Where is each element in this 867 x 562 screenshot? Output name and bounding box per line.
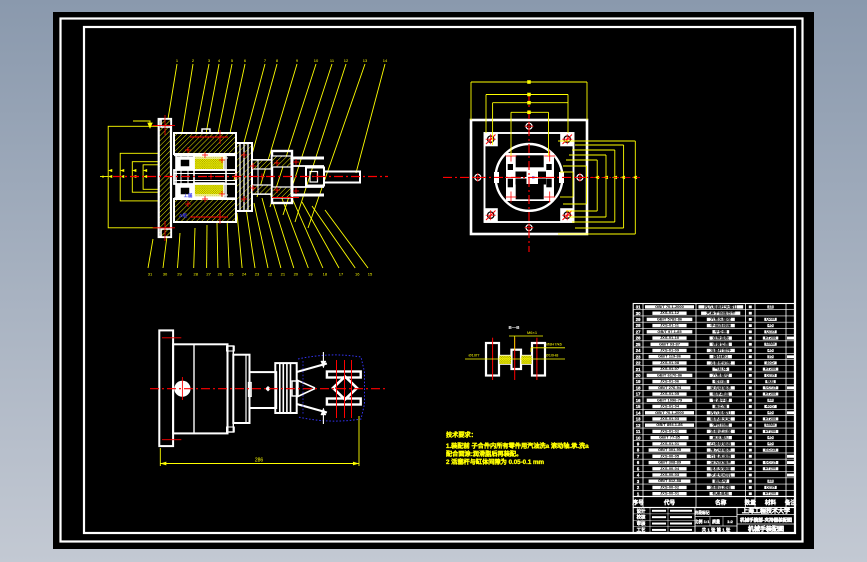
svg-text:23: 23 <box>255 272 260 277</box>
svg-text:17: 17 <box>339 272 344 277</box>
svg-text:20: 20 <box>636 373 641 378</box>
svg-text:65Mn: 65Mn <box>766 423 776 427</box>
svg-text:活塞杆合件: 活塞杆合件 <box>710 347 732 354</box>
svg-text:阶段标记: 阶段标记 <box>694 510 709 515</box>
svg-text:普通平键: 普通平键 <box>712 396 730 403</box>
svg-text:12: 12 <box>636 423 641 428</box>
svg-text:45: 45 <box>768 324 772 328</box>
svg-text:代号: 代号 <box>663 499 676 507</box>
svg-text:工艺: 工艺 <box>637 526 646 533</box>
svg-text:JXS-00-04: JXS-00-04 <box>660 466 680 471</box>
svg-text:GB/T 308-89: GB/T 308-89 <box>658 460 682 465</box>
svg-text:25: 25 <box>229 272 234 277</box>
svg-text:轴承端盖: 轴承端盖 <box>712 390 730 397</box>
svg-text:GB/T 301-95: GB/T 301-95 <box>658 447 682 452</box>
svg-text:质量: 质量 <box>712 518 720 524</box>
svg-text:机座底板: 机座底板 <box>712 490 730 497</box>
svg-text:Q235: Q235 <box>766 317 775 321</box>
svg-text:数量: 数量 <box>745 499 757 507</box>
svg-text:JXS-01-11: JXS-01-11 <box>660 323 680 328</box>
svg-text:深沟球轴承: 深沟球轴承 <box>710 384 732 391</box>
svg-text:GCr15: GCr15 <box>765 448 776 452</box>
svg-text:2 活塞杆与缸体间隙为 0.05-0.1 mm: 2 活塞杆与缸体间隙为 0.05-0.1 mm <box>446 458 544 466</box>
svg-text:输出轴: 输出轴 <box>714 403 727 410</box>
svg-text:10: 10 <box>314 58 319 63</box>
svg-text:23: 23 <box>636 354 641 359</box>
svg-text:GB/T 70.1-2000: GB/T 70.1-2000 <box>655 304 684 309</box>
svg-text:45: 45 <box>768 411 772 415</box>
svg-text:14: 14 <box>636 410 641 415</box>
svg-text:15: 15 <box>368 272 373 277</box>
svg-text:M6×1: M6×1 <box>527 330 538 335</box>
svg-text:45: 45 <box>768 305 772 309</box>
svg-text:21: 21 <box>281 272 286 277</box>
svg-text:HT200: HT200 <box>765 367 776 371</box>
svg-text:JXS-01-05: JXS-01-05 <box>660 391 680 396</box>
svg-text:JXS-01-06: JXS-01-06 <box>660 379 680 384</box>
svg-text:手指连接座: 手指连接座 <box>710 322 732 329</box>
svg-text:GB/T 119-86: GB/T 119-86 <box>658 354 682 359</box>
svg-text:27: 27 <box>636 329 641 334</box>
svg-text:JXS-01-03: JXS-01-03 <box>660 416 680 421</box>
svg-text:24: 24 <box>242 272 247 277</box>
svg-text:29: 29 <box>177 272 182 277</box>
svg-text:六角螺母: 六角螺母 <box>712 371 730 378</box>
svg-text:⊥届: ⊥届 <box>184 192 193 199</box>
svg-text:B—B: B—B <box>509 325 521 330</box>
svg-text:31: 31 <box>636 305 641 310</box>
svg-text:26: 26 <box>636 336 641 341</box>
svg-text:35: 35 <box>768 355 772 359</box>
svg-text:20: 20 <box>294 272 299 277</box>
svg-text:1:2: 1:2 <box>727 519 734 524</box>
svg-text:GB/T 5782-86: GB/T 5782-86 <box>657 316 683 321</box>
svg-text:JXS-01-07: JXS-01-07 <box>660 366 680 371</box>
svg-text:审核: 审核 <box>637 520 646 527</box>
svg-text:内六角圆柱头螺钉: 内六角圆柱头螺钉 <box>704 303 738 310</box>
svg-text:橡胶: 橡胶 <box>766 379 775 384</box>
svg-text:配合面涂:润滑脂后再装配。: 配合面涂:润滑脂后再装配。 <box>446 450 522 458</box>
svg-text:材料: 材料 <box>765 499 777 507</box>
svg-text:平垫圈: 平垫圈 <box>714 328 727 335</box>
svg-text:16: 16 <box>636 398 641 403</box>
svg-text:Δ组: Δ组 <box>179 212 187 219</box>
svg-text:JXS-01-09: JXS-01-09 <box>660 348 680 353</box>
svg-text:HT200: HT200 <box>765 336 776 340</box>
svg-text:19: 19 <box>308 272 313 277</box>
svg-text:HT200: HT200 <box>765 417 776 421</box>
svg-text:21: 21 <box>636 367 641 372</box>
svg-text:Ø10f7: Ø10f7 <box>469 353 481 358</box>
svg-text:13: 13 <box>636 417 641 422</box>
svg-text:286: 286 <box>255 458 264 464</box>
svg-text:行星减速器: 行星减速器 <box>709 452 732 459</box>
svg-text:内六角螺钉: 内六角螺钉 <box>710 409 732 416</box>
svg-text:14: 14 <box>383 58 388 63</box>
svg-text:GB/T 812-88: GB/T 812-88 <box>658 478 682 483</box>
svg-text:步进电动机: 步进电动机 <box>710 471 732 478</box>
svg-text:轴承座支架: 轴承座支架 <box>710 415 732 422</box>
svg-text:HT200: HT200 <box>765 392 776 396</box>
svg-text:10: 10 <box>636 435 641 440</box>
svg-text:JXS-00-05: JXS-00-05 <box>660 453 680 458</box>
svg-text:电机安装座: 电机安装座 <box>710 465 732 472</box>
svg-text:17: 17 <box>636 392 641 397</box>
svg-text:上海工程技术大学: 上海工程技术大学 <box>742 507 790 515</box>
svg-text:GB/T 93-87: GB/T 93-87 <box>659 341 681 346</box>
svg-text:45: 45 <box>768 479 772 483</box>
svg-text:气缸体: 气缸体 <box>714 365 727 372</box>
svg-text:Q235: Q235 <box>766 373 775 377</box>
svg-text:推力球轴承: 推力球轴承 <box>710 446 732 453</box>
svg-text:24: 24 <box>636 348 641 353</box>
svg-text:机械手装配图: 机械手装配图 <box>748 525 784 533</box>
svg-text:设计: 设计 <box>637 507 646 514</box>
svg-text:校核: 校核 <box>637 514 646 521</box>
svg-text:圆螺母: 圆螺母 <box>714 477 727 484</box>
svg-text:HT200: HT200 <box>765 429 776 433</box>
svg-text:GCr15: GCr15 <box>765 386 776 390</box>
svg-text:25: 25 <box>636 342 641 347</box>
svg-text:Q235: Q235 <box>766 330 775 334</box>
svg-text:备注: 备注 <box>784 499 797 507</box>
svg-text:45: 45 <box>768 442 772 446</box>
svg-text:六角头螺栓: 六角头螺栓 <box>710 315 732 322</box>
svg-text:11: 11 <box>636 429 641 434</box>
svg-text:JXS-01-12: JXS-01-12 <box>660 310 680 315</box>
svg-text:15: 15 <box>636 404 641 409</box>
svg-text:机械手腕部-夹持器装配图: 机械手腕部-夹持器装配图 <box>740 517 792 524</box>
svg-text:22: 22 <box>636 361 641 366</box>
svg-text:JXS-01-04: JXS-01-04 <box>660 404 680 409</box>
svg-text:28: 28 <box>193 272 198 277</box>
svg-text:弹簧垫圈: 弹簧垫圈 <box>712 340 729 347</box>
svg-text:45: 45 <box>768 398 772 402</box>
svg-text:GB/T 70.1-2000: GB/T 70.1-2000 <box>655 410 684 415</box>
svg-text:30: 30 <box>163 272 168 277</box>
svg-text:序号: 序号 <box>632 499 644 507</box>
svg-text:JXS-00-01: JXS-00-01 <box>660 491 680 496</box>
svg-text:30: 30 <box>636 311 641 316</box>
svg-text:GB/T 6170-86: GB/T 6170-86 <box>657 372 683 377</box>
svg-text:连接法兰盘: 连接法兰盘 <box>710 427 732 434</box>
svg-text:Q235: Q235 <box>766 485 775 489</box>
svg-text:活塞密封圈: 活塞密封圈 <box>710 359 731 366</box>
svg-text:夹紧手指座合件: 夹紧手指座合件 <box>706 309 736 316</box>
svg-text:45: 45 <box>768 348 772 352</box>
svg-text:GB/T 97.1-85: GB/T 97.1-85 <box>657 329 682 334</box>
svg-text:28: 28 <box>636 323 641 328</box>
svg-text:29: 29 <box>636 317 641 322</box>
svg-text:名称: 名称 <box>715 499 727 507</box>
svg-text:19: 19 <box>636 379 641 384</box>
svg-text:1.装配前 子合件内所有零件用汽油洗a 滚动轴.承.洗a: 1.装配前 子合件内所有零件用汽油洗a 滚动轴.承.洗a <box>446 442 589 450</box>
svg-text:45: 45 <box>768 436 772 440</box>
svg-text:16: 16 <box>355 272 360 277</box>
svg-text:密封圈: 密封圈 <box>714 378 727 385</box>
svg-text:26: 26 <box>218 272 223 277</box>
svg-text:连接过渡板: 连接过渡板 <box>710 484 732 491</box>
svg-text:JXS-00-02: JXS-00-02 <box>660 485 680 490</box>
svg-text:27: 27 <box>206 272 211 277</box>
svg-text:HT200: HT200 <box>765 467 776 471</box>
svg-text:GB/T 894.1-86: GB/T 894.1-86 <box>656 422 683 427</box>
svg-text:JXS-01-10: JXS-01-10 <box>660 335 680 340</box>
svg-text:紧定螺钉: 紧定螺钉 <box>712 434 730 441</box>
svg-text:22: 22 <box>268 272 273 277</box>
svg-text:HT200: HT200 <box>765 492 776 496</box>
svg-text:技术要求：: 技术要求： <box>446 431 477 439</box>
svg-text:连接盖板: 连接盖板 <box>712 334 730 341</box>
svg-text:GB/T 1096-79: GB/T 1096-79 <box>657 397 683 402</box>
svg-text:圆柱鈰1: 圆柱鈰1 <box>713 353 729 360</box>
svg-text:40Cr: 40Cr <box>766 361 775 365</box>
svg-text:GB/T 276-94: GB/T 276-94 <box>658 385 682 390</box>
svg-text:JXS-01-01: JXS-01-01 <box>660 441 680 446</box>
svg-text:12: 12 <box>344 58 349 63</box>
svg-text:13: 13 <box>363 58 368 63</box>
svg-text:弹性挡圈: 弹性挡圈 <box>712 421 729 428</box>
svg-text:JXS-01-02: JXS-01-02 <box>660 428 680 433</box>
svg-text:Ø10H8: Ø10H8 <box>546 353 559 358</box>
svg-text:GCr15: GCr15 <box>765 460 776 464</box>
svg-text:比例 1:1: 比例 1:1 <box>695 518 711 524</box>
svg-text:GB/T 77-85: GB/T 77-85 <box>659 435 681 440</box>
svg-text:Ø8H7/k6: Ø8H7/k6 <box>546 342 563 347</box>
svg-text:18: 18 <box>636 385 641 390</box>
svg-text:18: 18 <box>323 272 328 277</box>
svg-text:共 1 张 第 1 张: 共 1 张 第 1 张 <box>702 527 731 534</box>
svg-text:JXS-01-08: JXS-01-08 <box>660 360 680 365</box>
svg-text:31: 31 <box>148 272 153 277</box>
svg-text:JXS-00-03: JXS-00-03 <box>660 472 680 477</box>
svg-text:凸缘联轴器: 凸缘联轴器 <box>710 440 732 447</box>
svg-text:深沟球轴承: 深沟球轴承 <box>710 459 732 466</box>
svg-text:65Mn: 65Mn <box>766 342 776 346</box>
svg-text:40Cr: 40Cr <box>766 404 775 408</box>
